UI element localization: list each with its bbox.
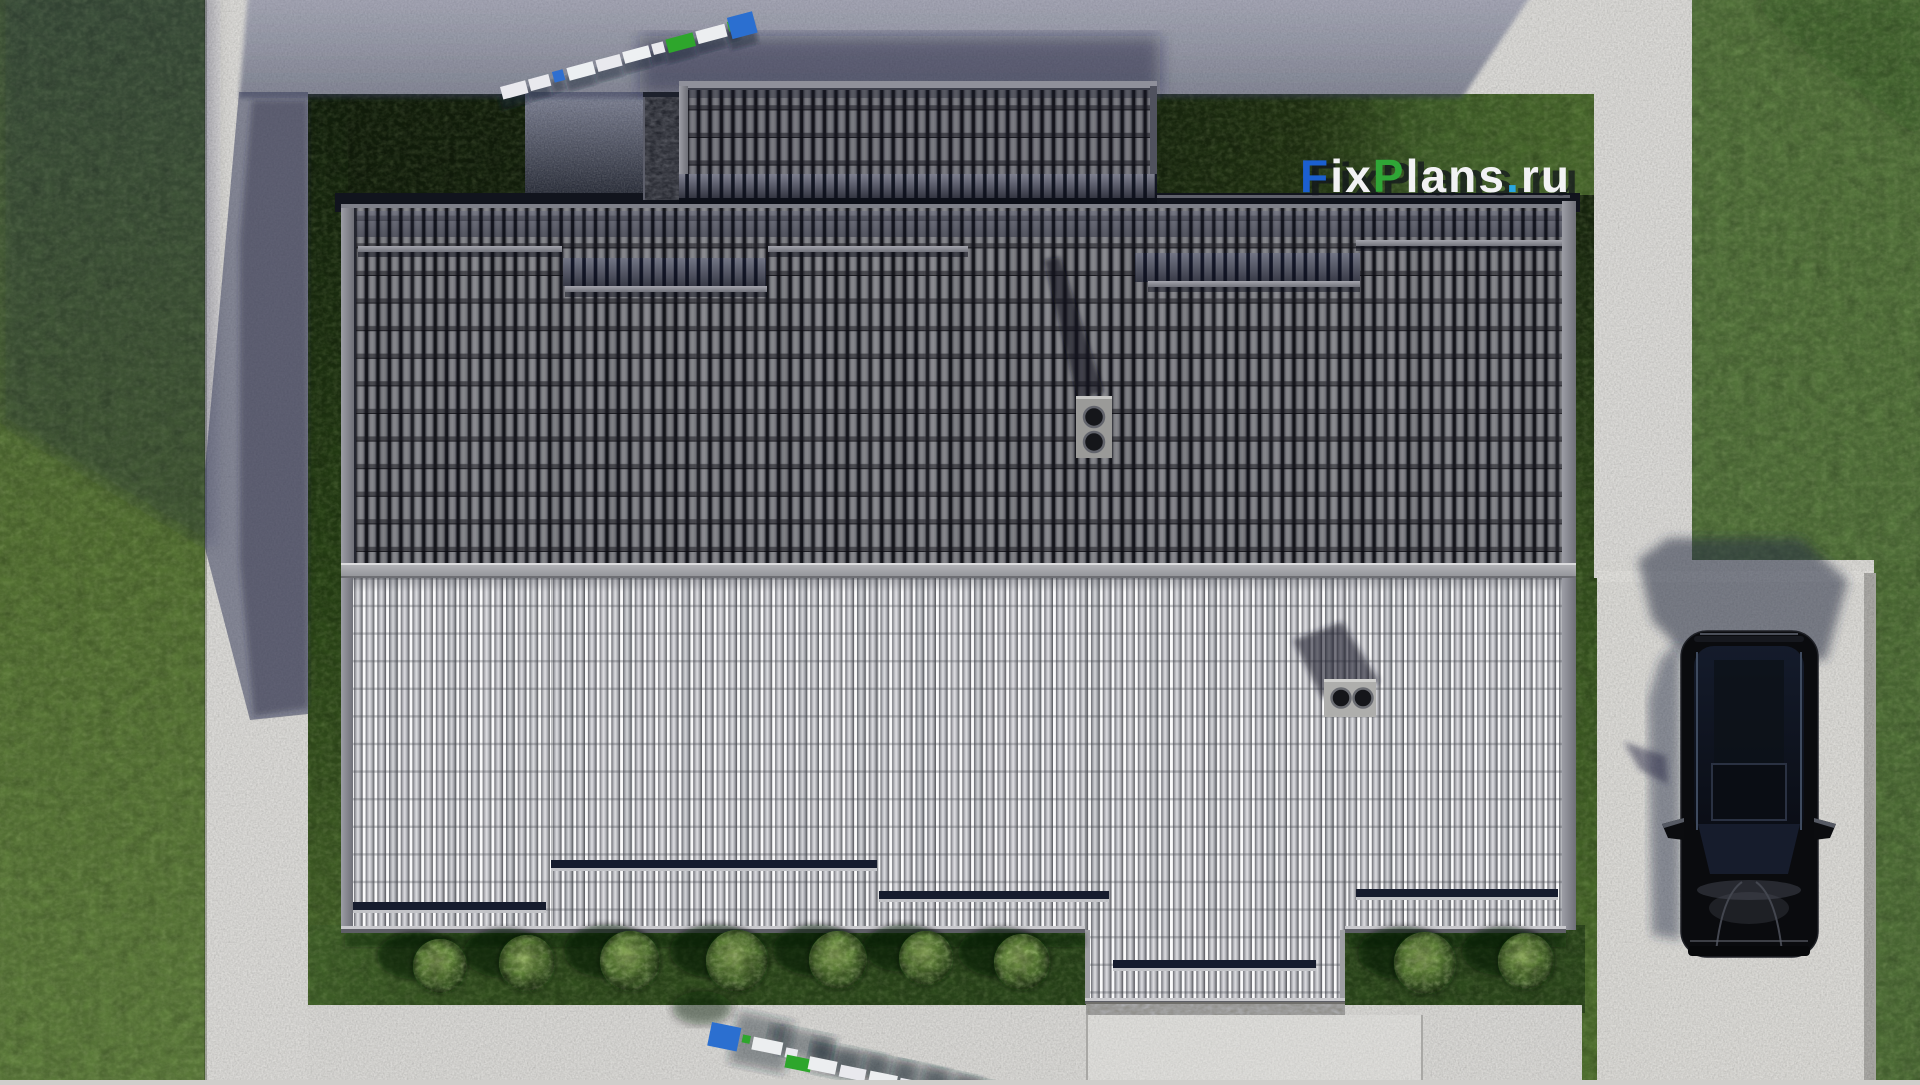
svg-text:FixPlans.ru: FixPlans.ru	[1300, 150, 1571, 202]
